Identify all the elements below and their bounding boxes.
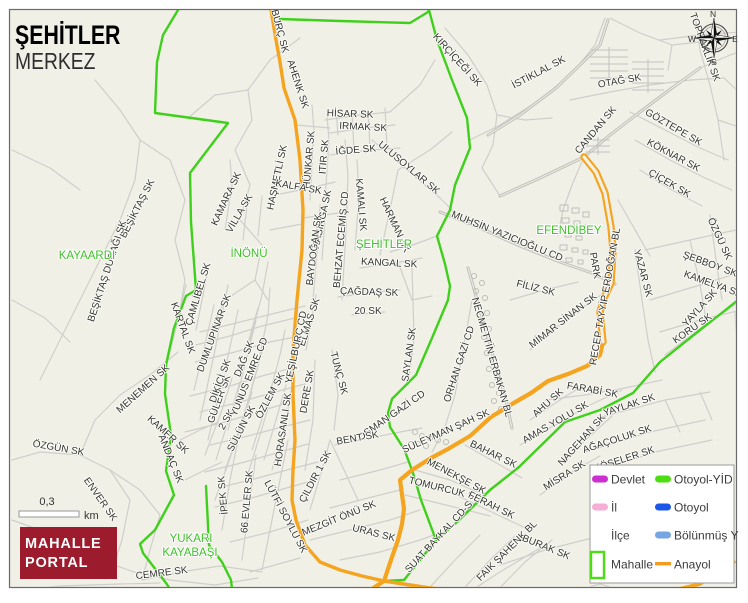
- svg-text:N: N: [710, 9, 716, 19]
- svg-text:ŞEHİTLER: ŞEHİTLER: [356, 238, 412, 251]
- svg-text:PORTAL: PORTAL: [25, 555, 88, 571]
- svg-text:E: E: [732, 34, 738, 44]
- svg-text:km: km: [84, 510, 99, 522]
- svg-text:EFENDİBEY: EFENDİBEY: [536, 224, 602, 237]
- svg-text:Otoyol-YİD: Otoyol-YİD: [674, 473, 733, 487]
- svg-text:W: W: [688, 34, 696, 44]
- svg-text:Devlet: Devlet: [611, 473, 646, 487]
- svg-text:Mahalle: Mahalle: [611, 558, 653, 572]
- svg-text:20 SK: 20 SK: [354, 306, 382, 317]
- svg-text:0,3: 0,3: [39, 496, 54, 508]
- svg-text:KAYAARDI: KAYAARDI: [59, 250, 115, 262]
- svg-text:İNÖNÜ: İNÖNÜ: [230, 247, 267, 260]
- svg-text:YUKARI: YUKARI: [170, 533, 213, 545]
- svg-text:Bölünmüş Y: Bölünmüş Y: [674, 529, 738, 543]
- svg-text:S: S: [711, 57, 717, 67]
- svg-text:İlçe: İlçe: [611, 529, 630, 543]
- svg-text:KAYABAŞI: KAYABAŞI: [162, 547, 217, 559]
- svg-text:MERKEZ: MERKEZ: [15, 50, 95, 75]
- svg-text:İl: İl: [611, 501, 617, 515]
- svg-text:MAHALLE: MAHALLE: [25, 536, 101, 552]
- svg-text:Otoyol: Otoyol: [674, 501, 709, 515]
- svg-text:Anayol: Anayol: [674, 558, 711, 572]
- svg-text:ŞEHİTLER: ŞEHİTLER: [15, 21, 121, 51]
